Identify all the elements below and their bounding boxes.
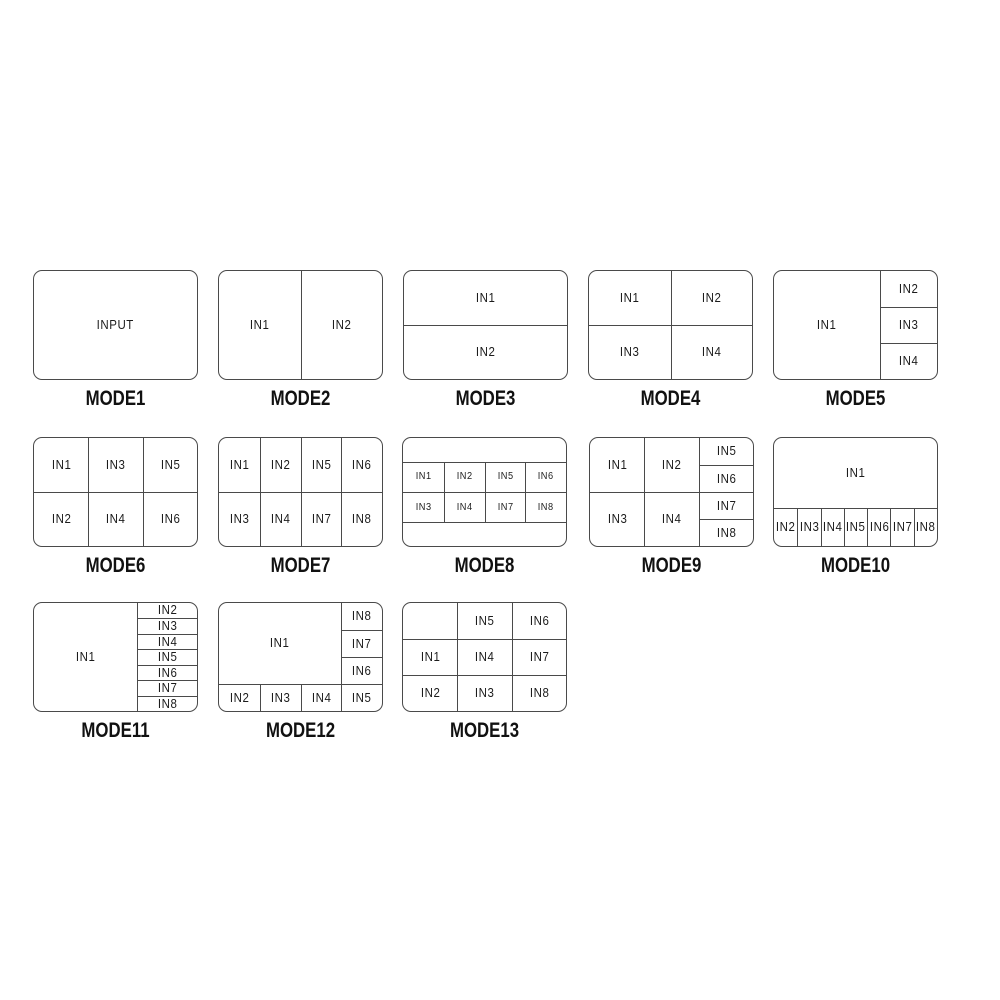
- input-region-label: IN8: [530, 687, 550, 700]
- input-region-label: IN5: [717, 445, 737, 458]
- input-region-label: IN4: [457, 503, 473, 513]
- input-region-label: IN2: [230, 692, 250, 705]
- input-region: IN1: [590, 438, 644, 492]
- input-region: IN3: [589, 325, 671, 379]
- input-region: IN1: [219, 271, 301, 379]
- input-region-label: IN8: [158, 698, 178, 711]
- input-region: IN5: [137, 649, 197, 664]
- input-region-label: IN6: [161, 513, 181, 526]
- mode-label: MODE5: [790, 388, 922, 409]
- mode-screen: IN1IN2: [218, 270, 383, 380]
- input-region-label: IN2: [776, 521, 796, 534]
- input-region: IN2: [404, 325, 567, 379]
- input-region: IN4: [880, 343, 937, 379]
- mode-screen: IN1IN2IN3IN4: [588, 270, 753, 380]
- input-region-label: IN3: [230, 513, 250, 526]
- input-region-label: IN2: [702, 292, 722, 305]
- input-region-label: IN4: [475, 651, 495, 664]
- input-region: IN1: [34, 603, 137, 711]
- input-region: IN2: [34, 492, 88, 546]
- mode-label: MODE12: [235, 720, 367, 741]
- input-region-label: IN6: [538, 472, 554, 482]
- input-region-label: IN2: [332, 319, 352, 332]
- mode-screen: IN1IN2IN5IN6IN3IN4IN7IN8: [402, 437, 567, 547]
- mode-label: MODE8: [419, 555, 551, 576]
- input-region-label: IN1: [846, 467, 866, 480]
- input-region-label: IN5: [497, 472, 513, 482]
- mode-diagram-6: IN1IN3IN5IN2IN4IN6MODE6: [33, 437, 198, 576]
- input-region-label: IN4: [106, 513, 126, 526]
- mode-screen: IN1IN3IN5IN2IN4IN6: [33, 437, 198, 547]
- input-region-label: IN4: [662, 513, 682, 526]
- input-region-label: IN3: [620, 346, 640, 359]
- input-region: IN2: [444, 462, 485, 492]
- input-region: IN1: [404, 271, 567, 325]
- input-region: IN1: [219, 438, 260, 492]
- input-region: IN3: [590, 492, 644, 546]
- input-region: IN8: [525, 492, 566, 522]
- input-region: IN4: [260, 492, 301, 546]
- input-region: IN3: [260, 684, 301, 711]
- input-region: IN7: [485, 492, 526, 522]
- input-region-label: IN7: [530, 651, 550, 664]
- input-region: IN1: [34, 438, 88, 492]
- input-region: IN2: [260, 438, 301, 492]
- input-region: IN6: [525, 462, 566, 492]
- input-region-label: IN1: [230, 459, 250, 472]
- mode-diagram-10: IN1IN2IN3IN4IN5IN6IN7IN8MODE10: [773, 437, 938, 576]
- input-region: IN6: [137, 665, 197, 680]
- input-region: IN5: [485, 462, 526, 492]
- mode-screen: IN1IN2IN3IN4IN5IN6IN7IN8: [773, 437, 938, 547]
- input-region-label: IN5: [846, 521, 866, 534]
- input-region: IN5: [143, 438, 197, 492]
- input-region: IN2: [671, 271, 753, 325]
- input-region-label: IN7: [352, 638, 372, 651]
- input-region-label: IN8: [352, 610, 372, 623]
- input-region: IN1: [219, 603, 341, 684]
- input-region-label: IN5: [161, 459, 181, 472]
- input-region: IN8: [137, 696, 197, 711]
- input-region: IN6: [867, 508, 890, 546]
- input-region-label: IN7: [312, 513, 332, 526]
- input-region: IN3: [797, 508, 820, 546]
- input-region: IN3: [403, 492, 444, 522]
- empty-region: [403, 438, 566, 462]
- input-region: IN1: [589, 271, 671, 325]
- empty-region: [403, 603, 457, 639]
- input-region-label: IN8: [538, 503, 554, 513]
- input-region-label: IN4: [158, 636, 178, 649]
- input-region-label: IN3: [106, 459, 126, 472]
- input-region: IN4: [88, 492, 142, 546]
- input-region: IN7: [137, 680, 197, 695]
- input-region: IN8: [341, 603, 382, 630]
- input-region: IN3: [88, 438, 142, 492]
- input-region: IN5: [341, 684, 382, 711]
- mode-diagram-2: IN1IN2MODE2: [218, 270, 383, 409]
- input-region-label: IN1: [415, 472, 431, 482]
- input-region: IN1: [774, 438, 937, 508]
- mode-diagram-1: INPUTMODE1: [33, 270, 198, 409]
- input-region: IN8: [914, 508, 937, 546]
- input-region-label: IN1: [270, 637, 290, 650]
- input-region: IN4: [301, 684, 342, 711]
- mode-screen: IN5IN6IN1IN4IN7IN2IN3IN8: [402, 602, 567, 712]
- input-region-label: IN3: [415, 503, 431, 513]
- input-region-label: IN1: [620, 292, 640, 305]
- input-region: IN5: [844, 508, 867, 546]
- mode-label: MODE1: [50, 388, 182, 409]
- mode-screen: IN1IN2: [403, 270, 568, 380]
- input-region-label: IN5: [312, 459, 332, 472]
- input-region-label: IN4: [702, 346, 722, 359]
- input-region: IN8: [512, 675, 566, 711]
- input-region: IN7: [301, 492, 342, 546]
- input-region-label: IN5: [475, 615, 495, 628]
- mode-label: MODE9: [606, 555, 738, 576]
- empty-region: [403, 522, 566, 546]
- input-region-label: IN6: [717, 473, 737, 486]
- input-region: IN4: [671, 325, 753, 379]
- input-region: IN1: [774, 271, 880, 379]
- mode-diagram-3: IN1IN2MODE3: [403, 270, 568, 409]
- input-region: IN4: [137, 634, 197, 649]
- input-region-label: IN8: [717, 527, 737, 540]
- input-region: IN2: [644, 438, 698, 492]
- mode-diagram-11: IN1IN2IN3IN4IN5IN6IN7IN8MODE11: [33, 602, 198, 741]
- input-region-label: IN3: [607, 513, 627, 526]
- input-region-label: IN7: [158, 682, 178, 695]
- input-region: IN4: [821, 508, 844, 546]
- input-region: IN2: [219, 684, 260, 711]
- input-region: IN3: [219, 492, 260, 546]
- input-region: IN7: [699, 492, 753, 519]
- input-region: IN2: [301, 271, 383, 379]
- mode-diagrams-grid: INPUTMODE1IN1IN2MODE2IN1IN2MODE3IN1IN2IN…: [0, 0, 1000, 1000]
- input-region: IN6: [341, 657, 382, 684]
- input-region-label: IN6: [869, 521, 889, 534]
- input-region-label: IN3: [800, 521, 820, 534]
- input-region-label: IN3: [475, 687, 495, 700]
- input-region-label: IN6: [352, 459, 372, 472]
- input-region-label: IN3: [899, 319, 919, 332]
- input-region-label: IN2: [476, 346, 496, 359]
- input-region: IN2: [774, 508, 797, 546]
- input-region-label: IN7: [497, 503, 513, 513]
- input-region-label: IN6: [530, 615, 550, 628]
- input-region-label: IN5: [158, 651, 178, 664]
- input-region-label: IN8: [916, 521, 936, 534]
- mode-label: MODE7: [235, 555, 367, 576]
- input-region: IN4: [457, 639, 511, 675]
- mode-diagrams-page: { "modes": [ { "label": "MODE1", "cells"…: [0, 0, 1000, 1000]
- mode-diagram-12: IN1IN8IN7IN6IN2IN3IN4IN5MODE12: [218, 602, 383, 741]
- input-region-label: IN1: [76, 651, 96, 664]
- input-region: IN3: [457, 675, 511, 711]
- input-region-label: IN2: [899, 283, 919, 296]
- input-region-label: IN4: [312, 692, 332, 705]
- mode-screen: IN1IN2IN3IN4: [773, 270, 938, 380]
- input-region: IN1: [403, 639, 457, 675]
- input-region: IN2: [137, 603, 197, 618]
- input-region-label: IN2: [51, 513, 71, 526]
- input-region: IN6: [143, 492, 197, 546]
- input-region-label: IN2: [420, 687, 440, 700]
- input-region-label: IN1: [476, 292, 496, 305]
- input-region: IN8: [699, 519, 753, 546]
- input-region: IN7: [341, 630, 382, 657]
- mode-diagram-7: IN1IN2IN5IN6IN3IN4IN7IN8MODE7: [218, 437, 383, 576]
- mode-diagram-5: IN1IN2IN3IN4MODE5: [773, 270, 938, 409]
- mode-diagram-13: IN5IN6IN1IN4IN7IN2IN3IN8MODE13: [402, 602, 567, 741]
- input-region-label: IN4: [823, 521, 843, 534]
- mode-label: MODE4: [605, 388, 737, 409]
- input-region-label: IN3: [158, 620, 178, 633]
- input-region-label: IN5: [352, 692, 372, 705]
- input-region-label: IN2: [158, 604, 178, 617]
- input-region: IN4: [444, 492, 485, 522]
- input-region-label: IN1: [250, 319, 270, 332]
- mode-label: MODE10: [790, 555, 922, 576]
- input-region: IN6: [512, 603, 566, 639]
- input-region: IN2: [403, 675, 457, 711]
- mode-screen: IN1IN8IN7IN6IN2IN3IN4IN5: [218, 602, 383, 712]
- input-region: IN5: [699, 438, 753, 465]
- input-region: IN7: [890, 508, 913, 546]
- mode-label: MODE3: [420, 388, 552, 409]
- input-region-label: IN7: [717, 500, 737, 513]
- input-region: IN3: [880, 307, 937, 343]
- input-region-label: IN2: [271, 459, 291, 472]
- mode-diagram-9: IN1IN2IN3IN4IN5IN6IN7IN8MODE9: [589, 437, 754, 576]
- input-region-label: INPUT: [97, 319, 134, 332]
- input-region-label: IN6: [352, 665, 372, 678]
- input-region-label: IN4: [271, 513, 291, 526]
- mode-screen: INPUT: [33, 270, 198, 380]
- mode-screen: IN1IN2IN3IN4IN5IN6IN7IN8: [33, 602, 198, 712]
- input-region: IN1: [403, 462, 444, 492]
- input-region-label: IN8: [352, 513, 372, 526]
- input-region-label: IN4: [899, 355, 919, 368]
- input-region-label: IN1: [817, 319, 837, 332]
- input-region: IN7: [512, 639, 566, 675]
- mode-label: MODE2: [235, 388, 367, 409]
- input-region-label: IN1: [420, 651, 440, 664]
- input-region: IN5: [457, 603, 511, 639]
- mode-label: MODE6: [50, 555, 182, 576]
- input-region: IN8: [341, 492, 382, 546]
- input-region-label: IN2: [662, 459, 682, 472]
- input-region: IN5: [301, 438, 342, 492]
- input-region-label: IN2: [457, 472, 473, 482]
- input-region: INPUT: [34, 271, 197, 379]
- input-region-label: IN1: [51, 459, 71, 472]
- input-region: IN2: [880, 271, 937, 307]
- input-region: IN6: [699, 465, 753, 492]
- input-region: IN4: [644, 492, 698, 546]
- input-region: IN3: [137, 618, 197, 633]
- mode-diagram-8: IN1IN2IN5IN6IN3IN4IN7IN8MODE8: [402, 437, 567, 576]
- input-region: IN6: [341, 438, 382, 492]
- mode-label: MODE13: [419, 720, 551, 741]
- mode-label: MODE11: [50, 720, 182, 741]
- input-region-label: IN6: [158, 667, 178, 680]
- mode-diagram-4: IN1IN2IN3IN4MODE4: [588, 270, 753, 409]
- mode-screen: IN1IN2IN5IN6IN3IN4IN7IN8: [218, 437, 383, 547]
- input-region-label: IN7: [893, 521, 913, 534]
- mode-screen: IN1IN2IN3IN4IN5IN6IN7IN8: [589, 437, 754, 547]
- input-region-label: IN3: [271, 692, 291, 705]
- input-region-label: IN1: [607, 459, 627, 472]
